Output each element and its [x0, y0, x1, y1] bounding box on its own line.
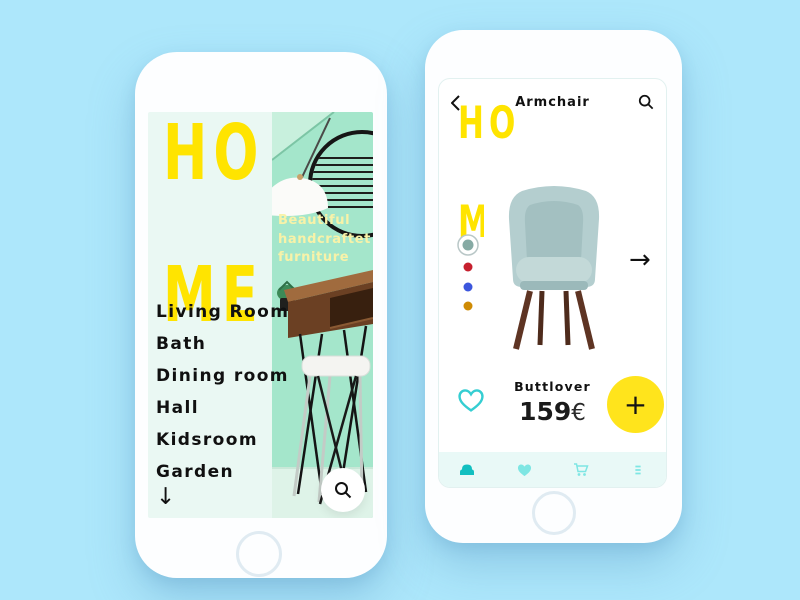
chevron-left-icon — [451, 95, 461, 111]
armchair-icon — [459, 462, 475, 477]
menu-item-kidsroom[interactable]: Kidsroom — [156, 430, 289, 448]
category-menu: Living Room Bath Dining room Hall Kidsro… — [156, 302, 289, 494]
top-bar: Armchair — [439, 93, 666, 113]
menu-item-hall[interactable]: Hall — [156, 398, 289, 416]
menu-item-bath[interactable]: Bath — [156, 334, 289, 352]
menu-item-dining-room[interactable]: Dining room — [156, 366, 289, 384]
menu-icon — [631, 463, 645, 477]
search-icon — [638, 94, 654, 110]
scroll-down-arrow-icon[interactable]: ↓ — [156, 484, 175, 510]
page-title: Armchair — [439, 93, 666, 113]
menu-item-living-room[interactable]: Living Room — [156, 302, 289, 320]
heart-icon — [517, 463, 532, 477]
home-button[interactable] — [532, 491, 576, 535]
product-screen: Armchair HO ME — [438, 78, 667, 488]
menu-item-garden[interactable]: Garden — [156, 462, 289, 480]
home-button[interactable] — [236, 531, 282, 577]
search-icon — [334, 481, 352, 499]
tab-cart[interactable] — [569, 458, 593, 482]
home-screen: Beautiful handcraftet furniture HO ME Li… — [148, 112, 373, 518]
color-swatch-orange[interactable] — [463, 301, 473, 311]
cart-icon — [573, 462, 589, 477]
tagline-line: furniture — [278, 249, 373, 268]
armchair-art — [484, 179, 624, 354]
tagline: Beautiful handcraftet furniture — [278, 212, 373, 268]
next-product-arrow[interactable]: → — [629, 247, 651, 273]
color-swatch-red[interactable] — [463, 262, 473, 272]
color-swatch-sage-selected[interactable] — [457, 234, 479, 256]
tab-bar — [439, 452, 666, 487]
phone-mockup-right: Armchair HO ME — [425, 30, 682, 543]
plus-icon: + — [624, 388, 647, 421]
currency-symbol: € — [571, 400, 586, 426]
tab-favorites[interactable] — [512, 458, 536, 482]
tab-menu[interactable] — [626, 458, 650, 482]
product-image-armchair — [484, 179, 624, 354]
brand-logo: HO ME — [163, 118, 264, 331]
tab-home-armchair[interactable] — [455, 458, 479, 482]
color-swatch-blue[interactable] — [463, 282, 473, 292]
phone-mockup-left: Beautiful handcraftet furniture HO ME Li… — [135, 52, 387, 578]
tagline-line: Beautiful — [278, 212, 373, 231]
tagline-line: handcraftet — [278, 231, 373, 250]
search-button[interactable] — [638, 94, 654, 114]
add-to-cart-button[interactable]: + — [607, 376, 664, 433]
back-button[interactable] — [451, 95, 461, 115]
search-button[interactable] — [321, 468, 365, 512]
